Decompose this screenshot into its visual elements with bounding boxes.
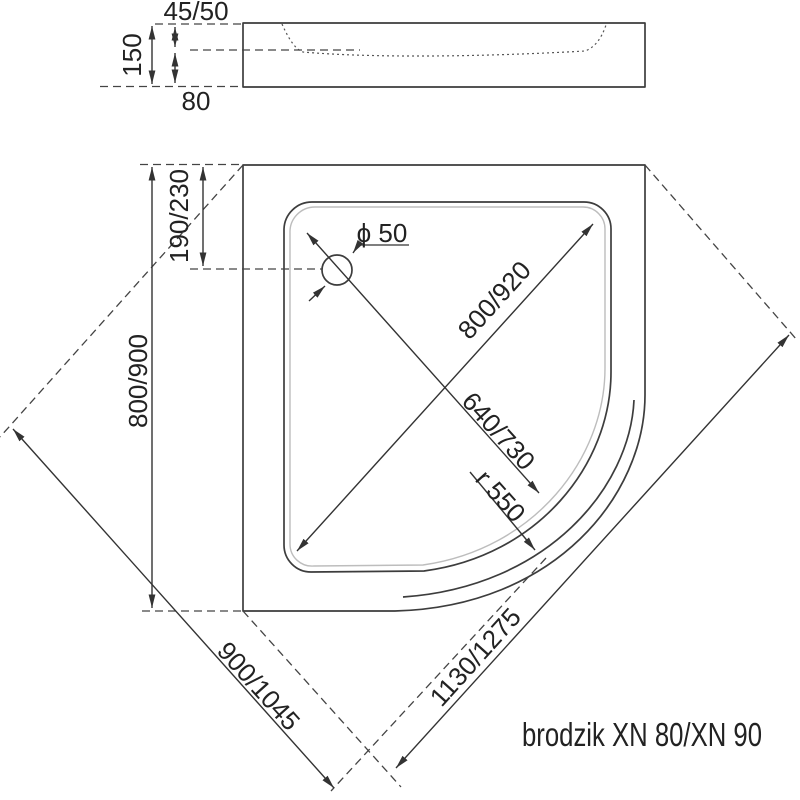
dim-label-overall-width: 800/900: [123, 334, 153, 428]
technical-drawing-page: 45/50 150 80 190/230: [0, 0, 800, 800]
dim-label-drain-offset: 190/230: [164, 169, 194, 263]
dim-label-right-side: 1130/1275: [424, 602, 527, 712]
corner-ext-line-right: [645, 165, 797, 340]
basin-profile-hidden-line: [282, 24, 606, 56]
corner-ext-line-left: [0, 165, 243, 437]
plan-view: 190/230 800/900 ϕ 50 800/920 640/730 r 5…: [0, 165, 797, 792]
side-section-view: 45/50 150 80: [100, 0, 645, 116]
dim-label-left-side: 900/1045: [211, 636, 306, 737]
drawing-title: brodzik XN 80/XN 90: [522, 716, 762, 753]
dim-label-rim-height: 45/50: [163, 0, 228, 26]
drain-circle: [322, 255, 352, 285]
shower-tray-drawing: 45/50 150 80 190/230: [0, 0, 800, 800]
dim-label-drain-diameter: ϕ 50: [357, 218, 408, 248]
basin-floor-edge: [290, 207, 605, 566]
dim-label-base-height: 80: [182, 86, 211, 116]
dim-label-drain-diagonal: 640/730: [456, 386, 541, 476]
side-view-outline: [243, 23, 645, 87]
dim-line-right-side: [396, 335, 789, 768]
dim-label-total-height: 150: [117, 33, 147, 76]
drain-dia-leader-lower: [309, 286, 325, 301]
